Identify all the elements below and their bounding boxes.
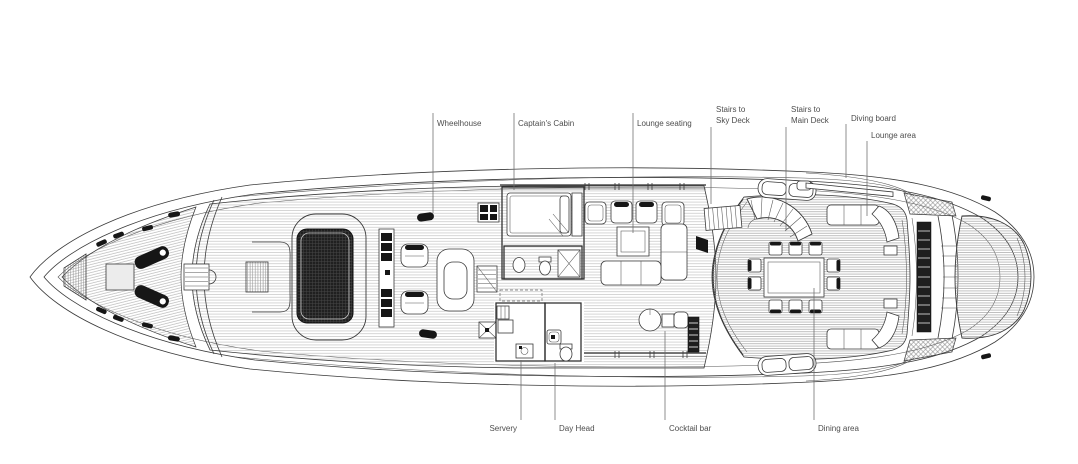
label-stairs-sky-deck-2: Sky Deck — [716, 116, 751, 125]
dining-chair — [748, 277, 761, 290]
stairs-to-sky-deck — [704, 205, 742, 230]
label-lounge-seating: Lounge seating — [637, 119, 692, 128]
label-servery: Servery — [489, 424, 517, 433]
lounge-armchair — [662, 202, 684, 226]
transom-gangway — [917, 222, 931, 332]
wardrobe — [572, 193, 582, 236]
label-diving-board: Diving board — [851, 114, 896, 123]
label-cocktail-bar: Cocktail bar — [669, 424, 712, 433]
lounge-armchair — [585, 202, 606, 224]
stern-cleat — [981, 353, 992, 360]
label-stairs-main-deck-1: Stairs to — [791, 105, 821, 114]
stern-cleat — [981, 195, 992, 202]
dining-chair — [769, 300, 782, 313]
dining-chair — [789, 300, 802, 313]
skylight-glass — [297, 229, 353, 323]
bar-stool — [662, 314, 674, 327]
toilet — [540, 261, 551, 275]
yacht-deck-plan: Wheelhouse Captain's Cabin Lounge seatin… — [0, 0, 1078, 464]
bar-seat — [674, 312, 688, 328]
label-lounge-area: Lounge area — [871, 131, 916, 140]
sun-pad — [757, 353, 816, 376]
label-day-head: Day Head — [559, 424, 595, 433]
anchor-locker — [64, 254, 86, 300]
bow-sunpad-square — [106, 264, 134, 290]
helm-seat — [401, 291, 428, 314]
servery-sink — [516, 344, 533, 358]
dumbwaiter — [479, 322, 496, 338]
dining-table — [764, 258, 824, 297]
dining-chair — [827, 259, 840, 272]
shower — [558, 250, 580, 277]
deck-plan-canvas: Wheelhouse Captain's Cabin Lounge seatin… — [0, 0, 1078, 464]
lounge-armchair — [636, 201, 657, 223]
dining-chair — [789, 242, 802, 255]
foredeck — [62, 207, 196, 347]
dining-chair — [827, 277, 840, 290]
pantry-cabinet — [478, 203, 499, 222]
label-stairs-sky-deck-1: Stairs to — [716, 105, 746, 114]
day-head-toilet — [560, 344, 572, 361]
helm-seat — [401, 244, 428, 267]
dining-chair — [748, 259, 761, 272]
captains-cabin — [502, 187, 584, 279]
sink — [513, 258, 525, 273]
label-captains-cabin: Captain's Cabin — [518, 119, 574, 128]
stern — [902, 193, 1031, 361]
dining-chair — [809, 242, 822, 255]
counter — [498, 320, 513, 333]
dining-chair — [769, 242, 782, 255]
stern-steps — [904, 193, 956, 216]
stern-steps — [904, 338, 956, 361]
bar-counter — [688, 317, 699, 352]
label-dining-area: Dining area — [818, 424, 859, 433]
bow-seat-pad — [246, 262, 268, 292]
vanity — [547, 330, 561, 344]
stairs-down — [477, 266, 497, 292]
lounge-armchair — [611, 201, 632, 223]
dining-chair — [809, 300, 822, 313]
center-console — [437, 249, 474, 311]
label-stairs-main-deck-2: Main Deck — [791, 116, 830, 125]
label-wheelhouse: Wheelhouse — [437, 119, 482, 128]
bed — [507, 193, 571, 236]
